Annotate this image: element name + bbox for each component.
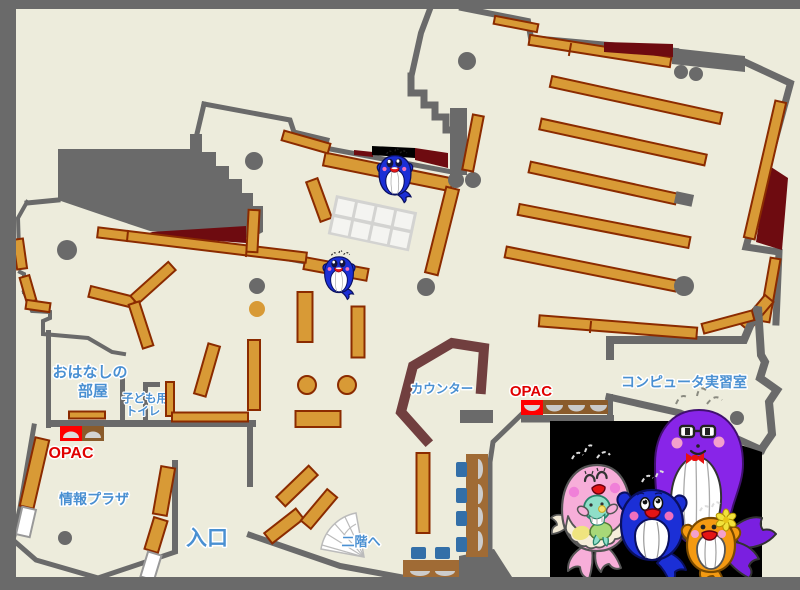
svg-text:トイレ: トイレ [126, 405, 161, 418]
svg-text:子ども用: 子ども用 [122, 392, 168, 405]
svg-text:OPAC: OPAC [48, 445, 93, 462]
svg-text:部屋: 部屋 [78, 382, 108, 400]
svg-text:入口: 入口 [186, 527, 228, 550]
svg-text:コンピュータ実習室: コンピュータ実習室 [621, 374, 747, 390]
svg-text:おはなしの: おはなしの [52, 364, 127, 381]
svg-text:カウンター: カウンター [411, 381, 474, 396]
svg-text:二階へ: 二階へ [341, 534, 380, 549]
svg-text:情報プラザ: 情報プラザ [59, 491, 129, 507]
svg-text:OPAC: OPAC [510, 383, 552, 400]
